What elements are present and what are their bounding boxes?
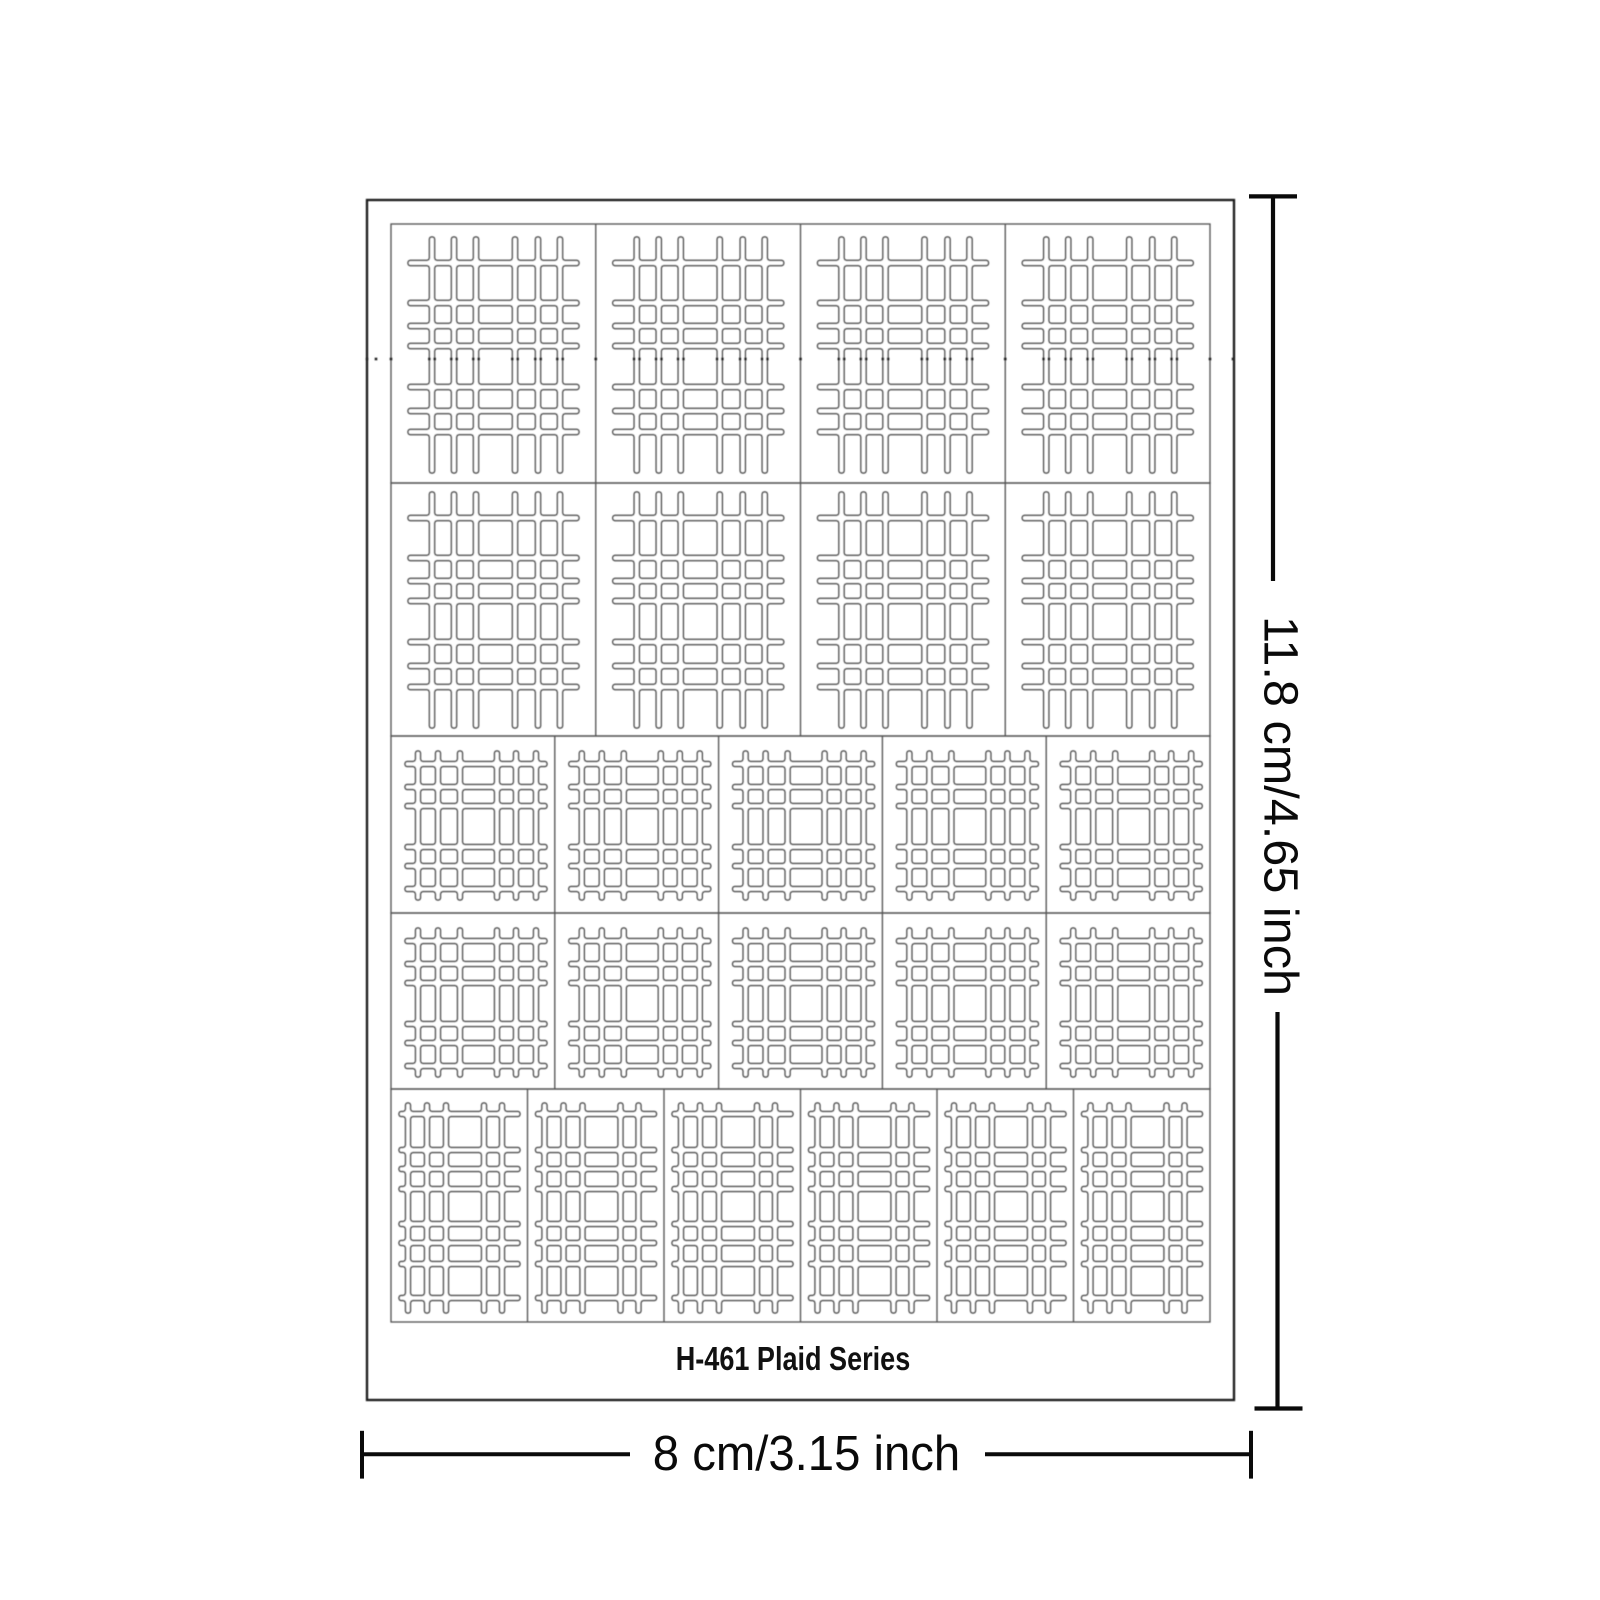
svg-text:11.8 cm/4.65 inch: 11.8 cm/4.65 inch [1254,616,1308,996]
svg-text:H-461 Plaid Series: H-461 Plaid Series [676,1342,910,1378]
svg-text:8 cm/3.15 inch: 8 cm/3.15 inch [653,1426,960,1481]
